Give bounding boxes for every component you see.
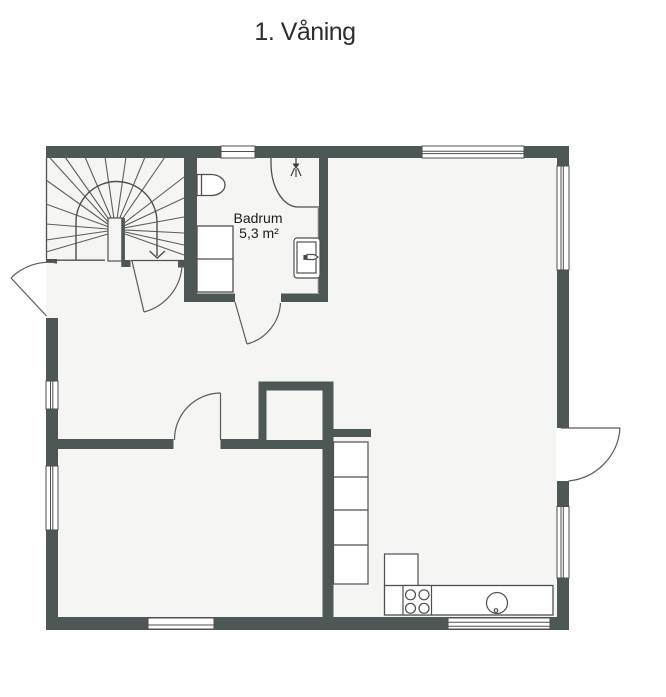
svg-text:5,3 m²: 5,3 m² [239, 225, 279, 241]
svg-text:Badrum: Badrum [233, 210, 282, 226]
svg-text:1. Våning: 1. Våning [254, 18, 355, 46]
